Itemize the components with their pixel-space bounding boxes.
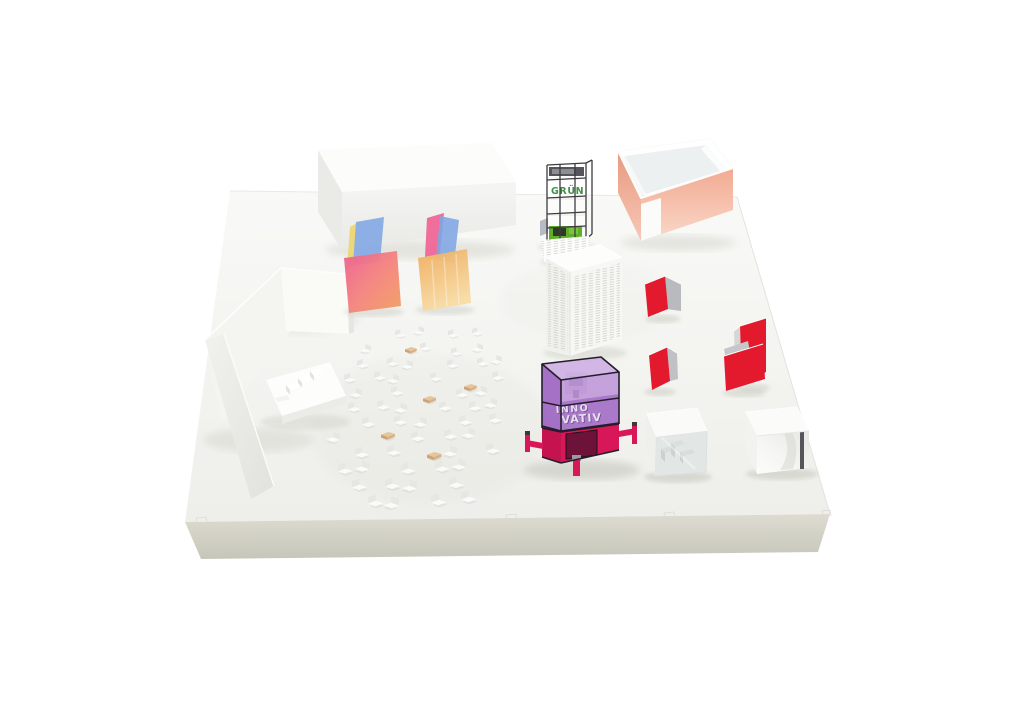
model-scene: GRÜN bbox=[0, 0, 1024, 724]
base-opening bbox=[566, 430, 597, 459]
salmon-box-doorway bbox=[641, 198, 661, 241]
mirror-cube-slit bbox=[800, 432, 804, 469]
room-wall-ne bbox=[281, 268, 349, 334]
model-photo: GRÜN bbox=[0, 0, 1024, 724]
panel-pink-orange bbox=[344, 251, 401, 313]
glass-display-cube bbox=[644, 408, 712, 483]
tower-sign-text: GRÜN bbox=[551, 186, 584, 197]
